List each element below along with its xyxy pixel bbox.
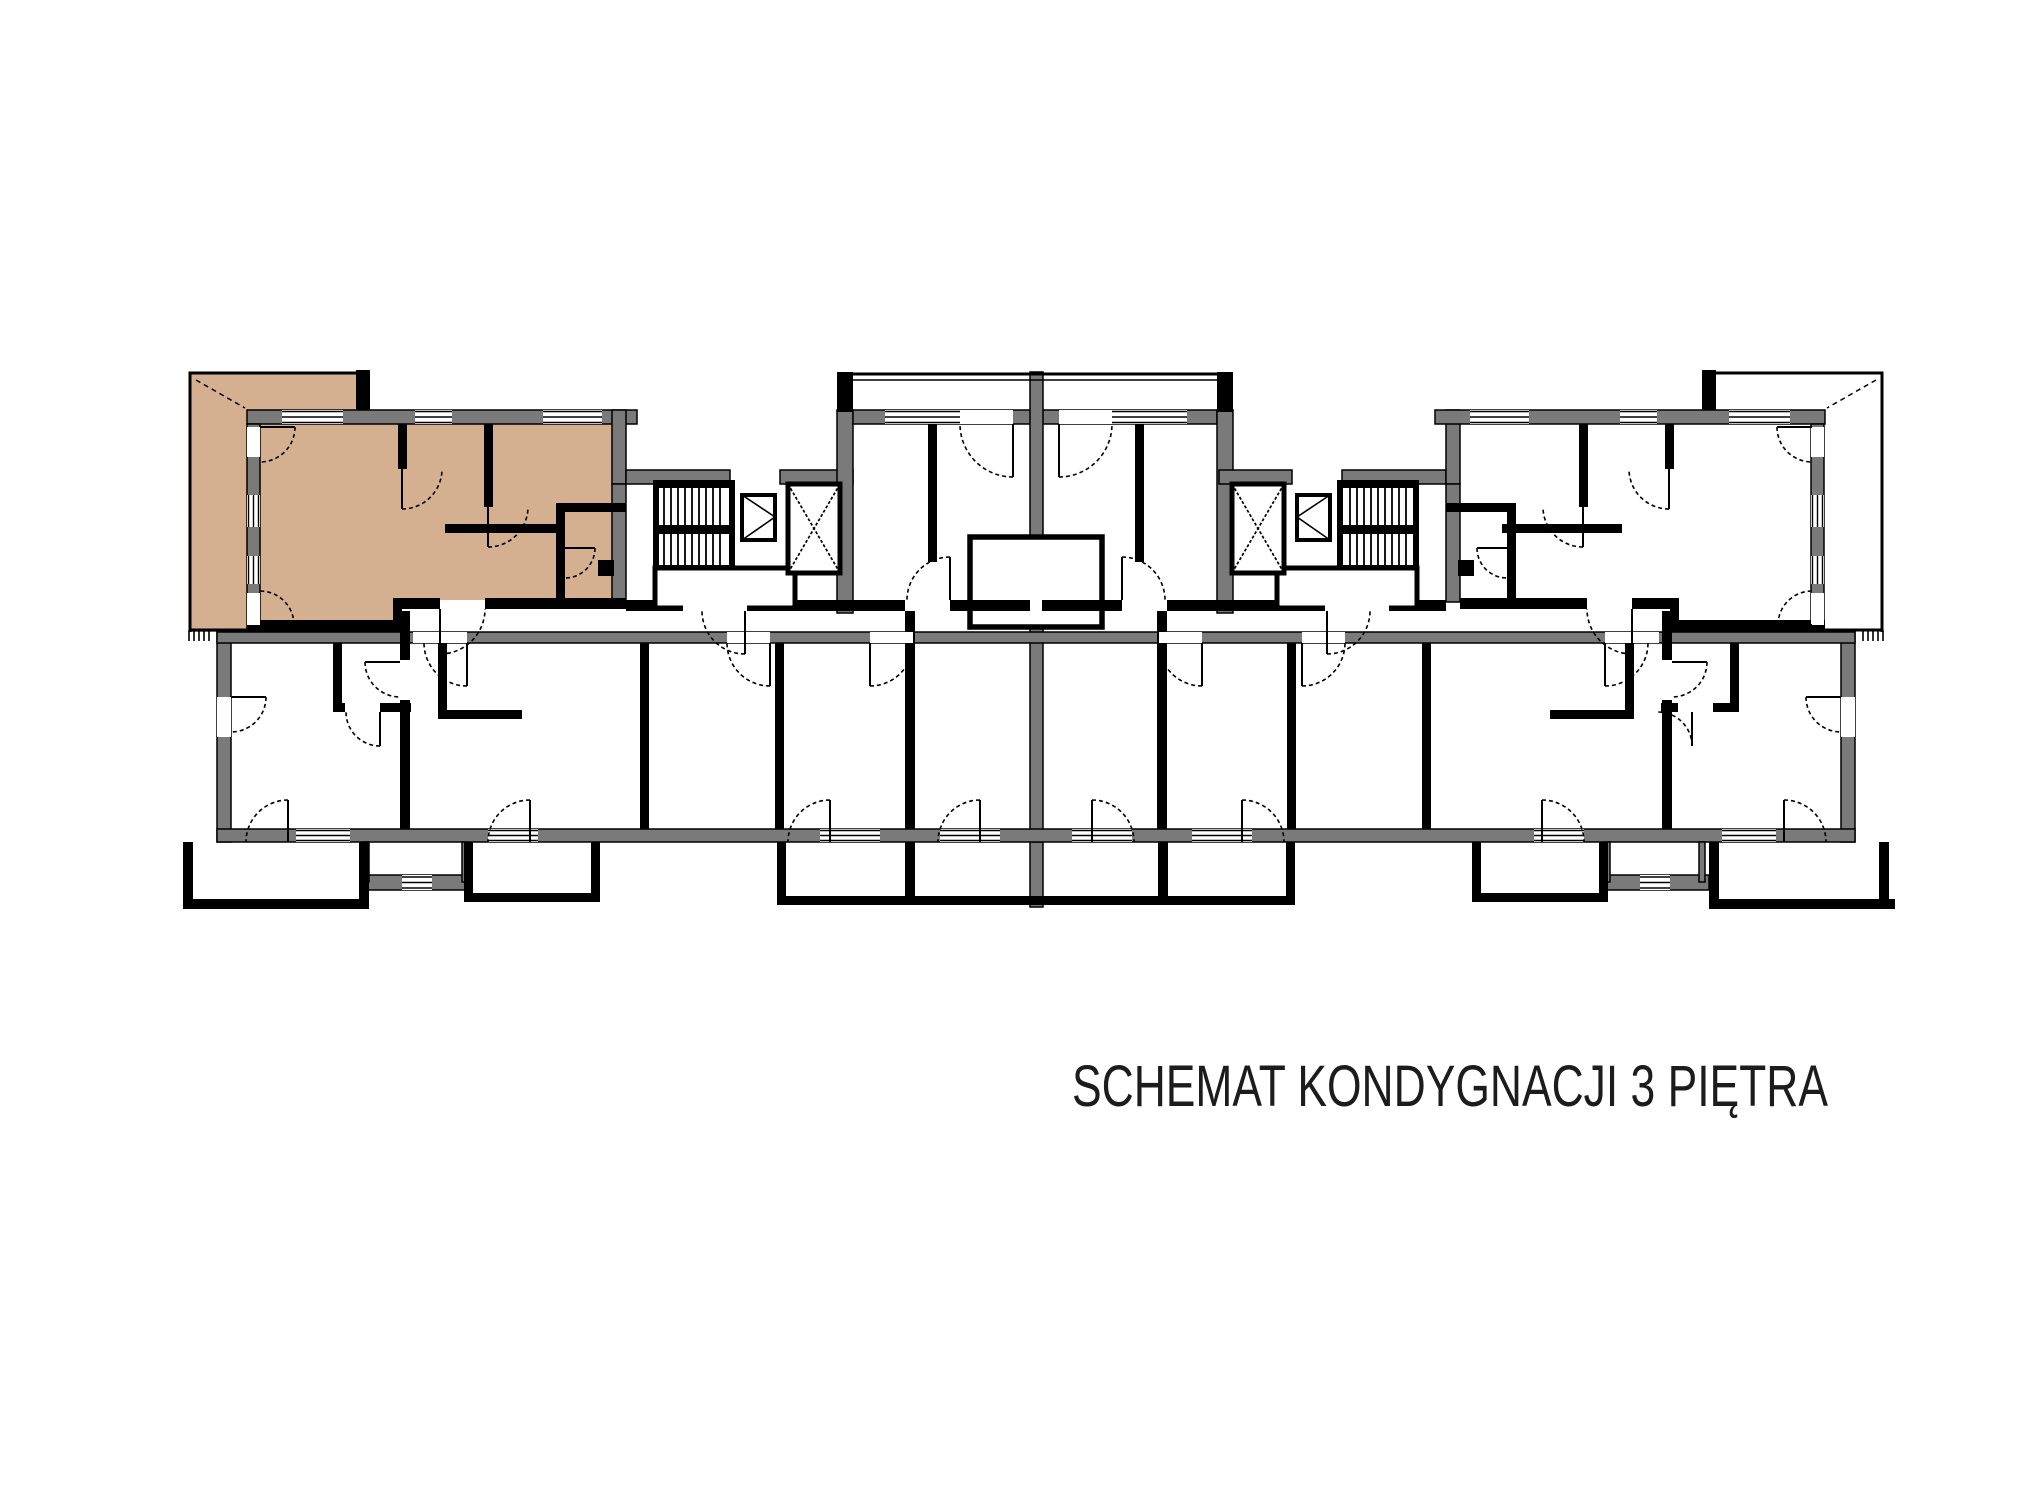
window-icon <box>1620 410 1657 424</box>
page-background <box>0 0 2031 1505</box>
floor-plan-drawing: SCHEMAT KONDYGNACJI 3 PIĘTRA <box>0 0 2031 1505</box>
page-title: SCHEMAT KONDYGNACJI 3 PIĘTRA <box>1072 1054 1828 1119</box>
floor-plan-page: SCHEMAT KONDYGNACJI 3 PIĘTRA <box>0 0 2031 1505</box>
window-icon <box>1112 410 1187 424</box>
window-icon <box>1722 829 1776 842</box>
window-icon <box>885 410 960 424</box>
window-icon <box>1470 410 1529 424</box>
elevator-left <box>788 484 840 573</box>
window-icon <box>940 829 1000 842</box>
window-icon <box>543 410 602 424</box>
window-icon <box>415 410 452 424</box>
window-icon <box>402 875 432 890</box>
shaft-right <box>1297 495 1330 540</box>
window-icon <box>1640 875 1670 890</box>
shaft-left <box>742 495 775 540</box>
elevator-right <box>1232 484 1284 573</box>
window-icon <box>296 829 350 842</box>
window-icon <box>1072 829 1132 842</box>
window-icon <box>282 410 343 424</box>
window-icon <box>1729 410 1790 424</box>
